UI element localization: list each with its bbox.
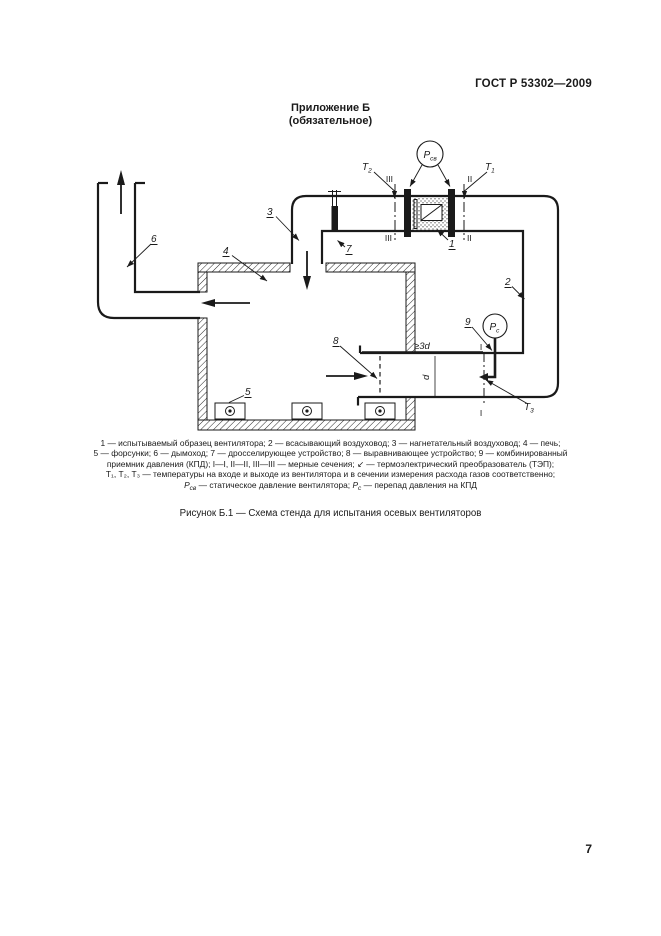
svg-text:III: III (385, 233, 392, 243)
flange-left (404, 189, 411, 237)
svg-text:III: III (386, 174, 393, 184)
length-dimension: ≥3d (414, 341, 430, 352)
svg-text:II: II (467, 233, 472, 243)
label-8: 8 (333, 336, 339, 347)
pressure-gauge-psv: Pсв (417, 141, 443, 167)
label-5: 5 (245, 387, 251, 398)
label-6: 6 (151, 234, 157, 245)
label-9: 9 (465, 317, 471, 328)
legend-line-3: приемник давления (КПД); I—I, II—II, III… (66, 459, 595, 469)
chimney (98, 183, 200, 318)
label-4: 4 (223, 246, 229, 257)
legend-line-2: 5 — форсунки; 6 — дымоход; 7 — дросселир… (66, 448, 595, 458)
label-2: 2 (504, 277, 511, 288)
legend-line-5: Рсв — статическое давление вентилятора; … (66, 480, 595, 494)
flow-arrows (117, 170, 368, 380)
label-t1: T1 (485, 162, 495, 175)
svg-text:I: I (480, 408, 482, 418)
figure-legend: 1 — испытываемый образец вентилятора; 2 … (66, 438, 595, 494)
legend-line-1: 1 — испытываемый образец вентилятора; 2 … (66, 438, 595, 448)
pressure-gauge-pc: Pс (483, 314, 507, 338)
figure-caption: Рисунок Б.1 — Схема стенда для испытания… (0, 508, 661, 519)
leader-lines (127, 165, 528, 404)
flange-right (448, 189, 455, 237)
diameter-dimension: d (421, 374, 432, 380)
svg-text:II: II (468, 174, 473, 184)
label-7: 7 (346, 244, 352, 255)
burner-nozzles (215, 403, 395, 419)
label-t3: T3 (524, 402, 534, 415)
label-1: 1 (449, 239, 455, 250)
page-number: 7 (585, 842, 592, 856)
label-3: 3 (267, 207, 273, 218)
svg-text:I: I (480, 342, 482, 352)
legend-line-4: Т₁, Т₂, Т₃ — температуры на входе и выхо… (66, 469, 595, 479)
label-t2: T2 (362, 162, 372, 175)
document-page: ГОСТ Р 53302—2009 Приложение Б (обязател… (0, 0, 661, 936)
